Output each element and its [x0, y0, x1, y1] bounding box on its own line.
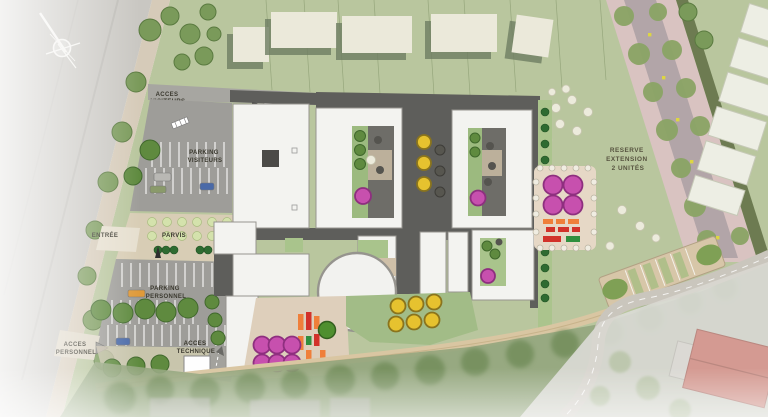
courtyard-north-1 — [352, 126, 394, 218]
label-reserve-extension: RESERVE EXTENSION 2 UNITÉS — [606, 147, 650, 172]
entry-pavilion — [214, 222, 256, 254]
site-plan: RESERVE EXTENSION 2 UNITÉS COUR DE SERVI… — [0, 0, 768, 417]
courtyard-east — [480, 238, 506, 286]
courtyard-north-2 — [468, 128, 506, 216]
label-parvis: PARVIS — [162, 233, 186, 239]
south-wing-3 — [448, 232, 468, 292]
south-west-wing — [233, 254, 309, 296]
south-wing-2 — [420, 232, 446, 294]
play-area-east — [533, 165, 597, 251]
